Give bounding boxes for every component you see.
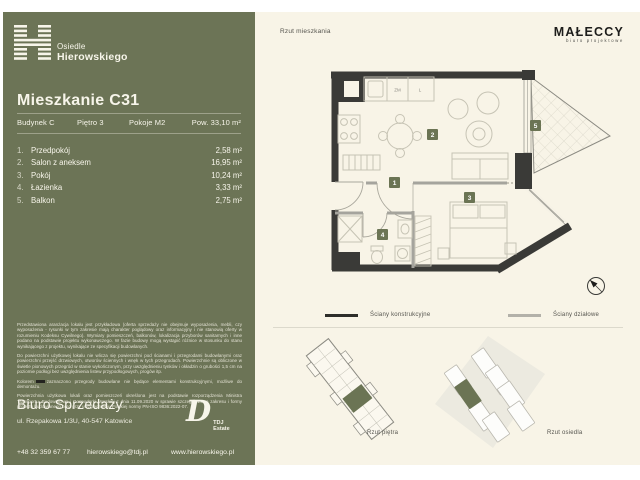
room-area: 2,58 m² xyxy=(216,145,242,157)
tdj-estate-glyph-icon: D xyxy=(186,397,211,432)
brand-name: Osiedle Hierowskiego xyxy=(57,42,128,63)
svg-text:5: 5 xyxy=(534,123,538,130)
dishwasher-label: ZM xyxy=(394,88,401,93)
room-name: Balkon xyxy=(31,195,216,207)
room-name: Pokój xyxy=(31,170,211,182)
shaft xyxy=(344,81,359,97)
apartment-summary-row: Budynek C Piętro 3 Pokoje M2 Pow. 33,10 … xyxy=(17,118,241,127)
total-area-label: Pow. 33,10 m² xyxy=(192,118,241,127)
disclaimer-paragraph-3: Koloremzaznaczono przegrody budowlane ni… xyxy=(17,379,242,390)
contact-row: +48 32 359 67 77 hierowskiego@tdj.pl www… xyxy=(17,449,243,456)
legend-partition: Ściany działowe xyxy=(508,312,599,318)
disclaimer-paragraph-1: Przedstawiona aranżacja lokalu jest przy… xyxy=(17,322,242,349)
brand-line2: Hierowskiego xyxy=(57,51,128,63)
partition-wall-label: Ściany działowe xyxy=(553,312,599,318)
room-name: Salon z aneksem xyxy=(31,157,211,169)
estate-mini-plan xyxy=(433,334,547,450)
sales-office-title: Biuro Sprzedaży xyxy=(17,396,123,412)
structural-wall-label: Ściany konstrukcyjne xyxy=(370,312,430,318)
room-row: 1. Przedpokój 2,58 m² xyxy=(17,145,242,157)
legend-structural: Ściany konstrukcyjne xyxy=(325,312,430,318)
badge-bathroom: 4 xyxy=(377,229,388,240)
room-row: 4. Łazienka 3,33 m² xyxy=(17,182,242,194)
architect-logo: MAŁECCY biuro projektowe xyxy=(554,26,624,43)
apartment-title: Mieszkanie C31 xyxy=(17,92,139,110)
wall-color-swatch xyxy=(36,380,45,383)
fridge-label: L xyxy=(419,88,422,93)
plan-caption: Rzut mieszkania xyxy=(280,28,331,35)
svg-text:2: 2 xyxy=(431,132,435,139)
website-link[interactable]: www.hierowskiego.pl xyxy=(171,449,243,456)
badge-balcony: 5 xyxy=(530,120,541,131)
tdj-estate-wordmark: TDJ Estate xyxy=(213,420,230,432)
apartment-floor-plan: ZM L xyxy=(303,58,635,306)
room-number: 5. xyxy=(17,195,31,207)
architect-name: MAŁECCY xyxy=(554,26,624,38)
room-row: 5. Balkon 2,75 m² xyxy=(17,195,242,207)
disclaimer-color-prefix: Kolorem xyxy=(17,379,34,384)
room-number: 4. xyxy=(17,182,31,194)
room-name: Łazienka xyxy=(31,182,216,194)
svg-text:3: 3 xyxy=(468,195,472,202)
floor-mini-caption: Rzut piętra xyxy=(367,430,398,436)
badge-hall: 1 xyxy=(389,177,400,188)
badge-bedroom: 3 xyxy=(464,192,475,203)
disclaimer-color-suffix: zaznaczono przegrody budowlane nie będąc… xyxy=(17,379,242,389)
room-row: 2. Salon z aneksem 16,95 m² xyxy=(17,157,242,169)
room-number: 3. xyxy=(17,170,31,182)
room-number: 2. xyxy=(17,157,31,169)
brand-line1: Osiedle xyxy=(57,42,128,51)
room-area: 3,33 m² xyxy=(216,182,242,194)
room-area: 16,95 m² xyxy=(211,157,242,169)
floor-mini-plan xyxy=(300,336,400,442)
disclaimer-paragraph-2: Do powierzchni użytkowej lokalu nie wlic… xyxy=(17,353,242,375)
room-number: 1. xyxy=(17,145,31,157)
living-room-furniture xyxy=(379,92,509,179)
room-area: 2,75 m² xyxy=(216,195,242,207)
room-list: 1. Przedpokój 2,58 m² 2. Salon z aneksem… xyxy=(17,145,242,207)
svg-text:1: 1 xyxy=(393,180,397,187)
tdj-line2: Estate xyxy=(213,426,230,432)
room-area: 10,24 m² xyxy=(211,170,242,182)
svg-text:4: 4 xyxy=(381,232,385,239)
bedroom-furniture xyxy=(438,202,516,259)
floorplan-panel: Rzut mieszkania MAŁECCY biuro projektowe xyxy=(255,12,640,465)
badge-living: 2 xyxy=(427,129,438,140)
email-link[interactable]: hierowskiego@tdj.pl xyxy=(87,449,171,456)
room-row: 3. Pokój 10,24 m² xyxy=(17,170,242,182)
building-label: Budynek C xyxy=(17,118,77,127)
divider xyxy=(17,133,241,134)
tdj-estate-logo: D TDJ Estate xyxy=(186,397,230,432)
structural-wall-sample xyxy=(325,314,358,317)
compass-icon xyxy=(585,275,607,297)
osiedle-hierowskiego-logo-icon xyxy=(14,25,51,62)
divider xyxy=(17,113,241,114)
sales-office-address: ul. Rzepakowa 1/3U, 40-547 Katowice xyxy=(17,418,132,425)
wardrobe-strip xyxy=(415,216,431,266)
partition-wall-sample xyxy=(508,314,541,317)
partition-walls xyxy=(335,183,507,268)
floor-label: Piętro 3 xyxy=(77,118,129,127)
room-name: Przedpokój xyxy=(31,145,216,157)
estate-mini-caption: Rzut osiedla xyxy=(547,430,582,436)
rooms-type-label: Pokoje M2 xyxy=(129,118,192,127)
divider xyxy=(273,327,623,328)
left-info-panel: Osiedle Hierowskiego Mieszkanie C31 Budy… xyxy=(3,12,255,465)
phone-number[interactable]: +48 32 359 67 77 xyxy=(17,449,87,456)
